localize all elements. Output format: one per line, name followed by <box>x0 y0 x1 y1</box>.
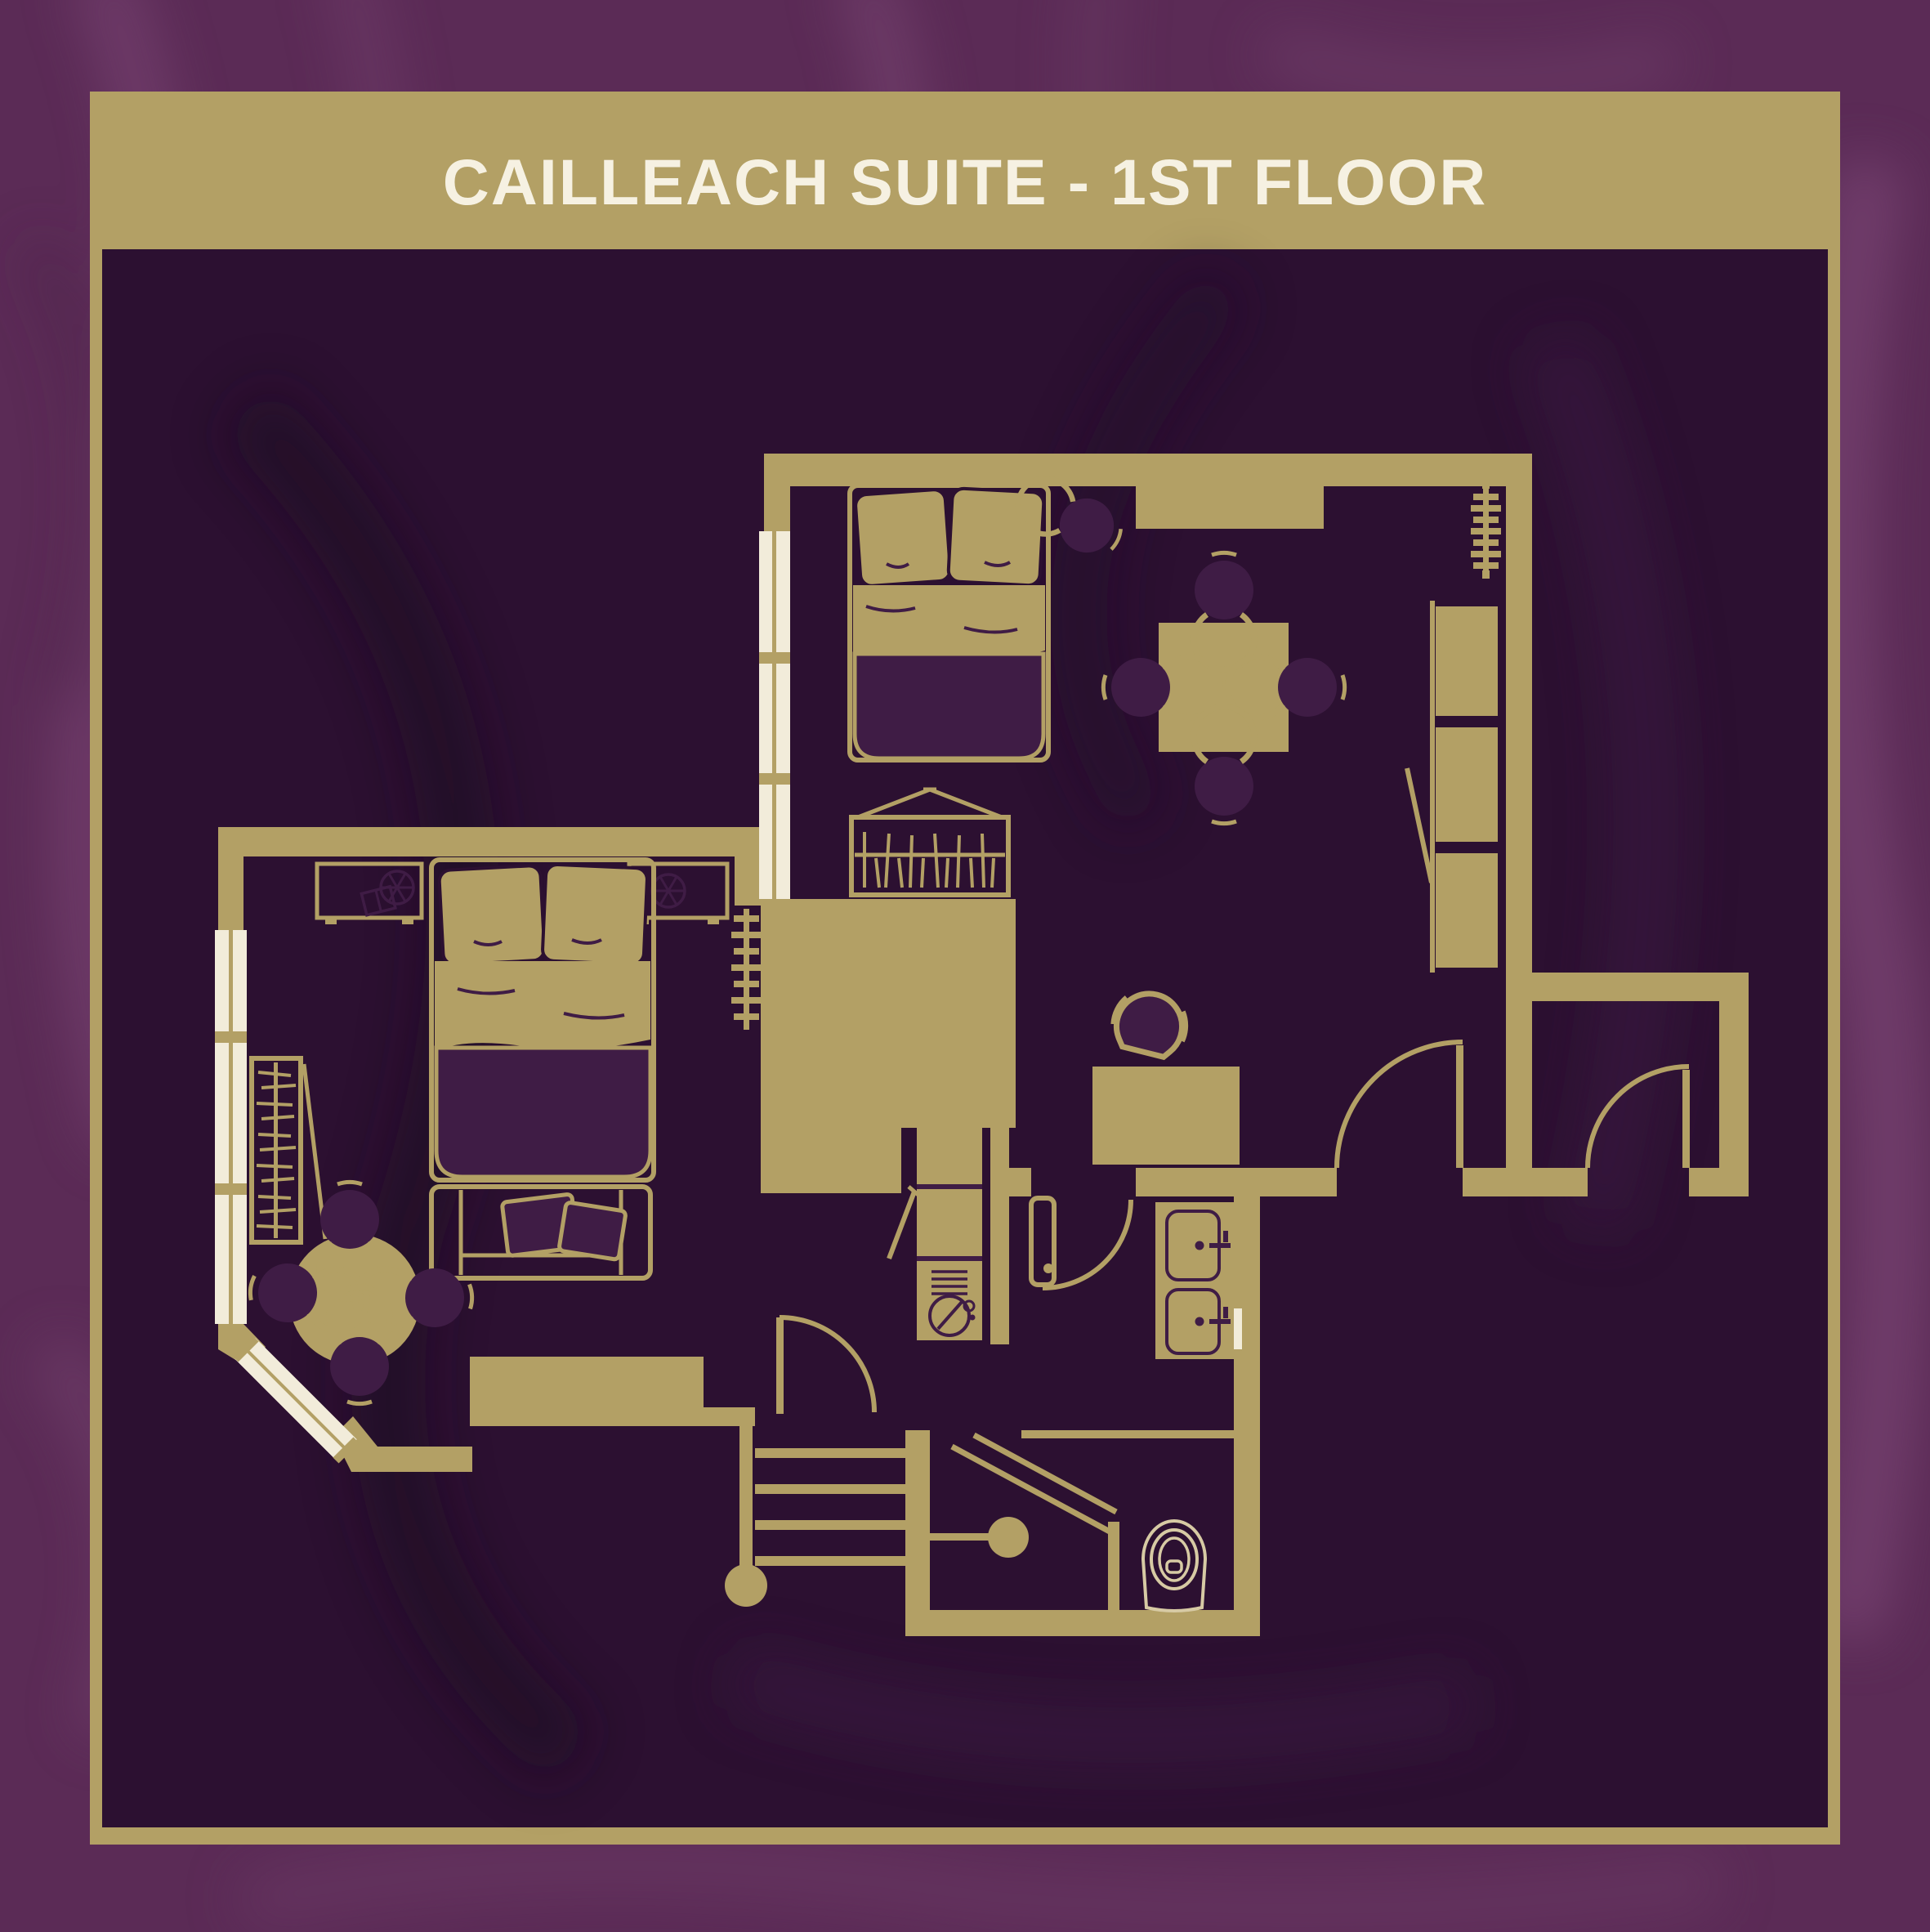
wall-wc-divider <box>1108 1522 1119 1610</box>
wall-top-protrusion <box>1136 486 1324 529</box>
wall-upper-room-left <box>764 454 790 531</box>
wall-left-bedroom-bottom-a <box>351 1447 472 1472</box>
wall-left-bedroom-left <box>218 827 243 930</box>
wall-shower-left <box>905 1430 930 1610</box>
wall-corridor-bottom-c <box>1689 1168 1749 1196</box>
double-vanity-icon <box>1155 1202 1234 1359</box>
wall-bathroom-right <box>1234 1189 1260 1636</box>
wall-right-boundary <box>1719 1001 1749 1196</box>
wardrobe-icon <box>1430 601 1498 973</box>
kitchenette-unit-icon <box>917 1128 982 1340</box>
page-title: CAILLEACH SUITE - 1ST FLOOR <box>443 145 1488 218</box>
radiator-upper-icon <box>1471 481 1501 579</box>
frame-left-border <box>90 249 102 1827</box>
wall-shower-top-line <box>1021 1430 1234 1438</box>
wall-left-bedroom-bottom-b <box>470 1357 704 1426</box>
window-upper-room-icon <box>759 531 790 899</box>
screenshot-root: CAILLEACH SUITE - 1ST FLOOR <box>0 0 1930 1932</box>
wall-bathroom-bottom <box>905 1610 1260 1636</box>
wall-left-bedroom-top <box>218 827 761 856</box>
wall-corridor-bottom-b <box>1463 1168 1588 1196</box>
wall-entry-corridor-top <box>1506 973 1749 1001</box>
wall-bath-door-stub <box>1009 1168 1031 1196</box>
wall-stair-landing <box>704 1407 755 1426</box>
frame-bottom-border <box>90 1827 1840 1845</box>
wall-upper-room-right <box>1506 486 1532 1196</box>
wall-kitchenette-right <box>990 1128 1009 1344</box>
floorplan-canvas: CAILLEACH SUITE - 1ST FLOOR <box>0 0 1930 1932</box>
window-left-bedroom-icon <box>215 930 247 1324</box>
wall-left-bedroom-right <box>735 827 761 906</box>
double-bed-left-icon <box>431 860 654 1180</box>
wall-upper-room-top <box>764 454 1532 486</box>
frame-right-border <box>1828 249 1840 1827</box>
